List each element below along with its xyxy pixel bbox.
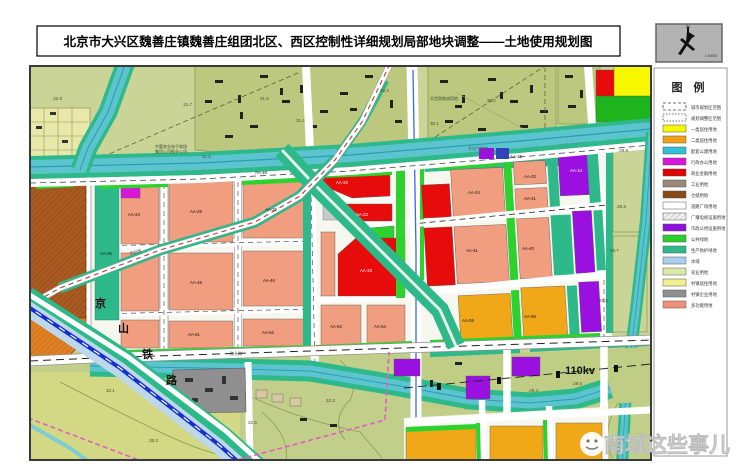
svg-text:一类居住用地: 一类居住用地 — [691, 126, 717, 133]
svg-text:山: 山 — [118, 321, 129, 335]
svg-text:二类居住用地: 二类居住用地 — [691, 137, 717, 144]
svg-text:水域: 水域 — [691, 258, 700, 264]
svg-text:.29.8: .29.8 — [616, 204, 627, 209]
svg-text:天宫院物流用地: 天宫院物流用地 — [430, 95, 458, 101]
svg-text:1:10000: 1:10000 — [705, 54, 717, 58]
svg-text:AA-62: AA-62 — [262, 330, 275, 335]
svg-text:村镇企业用地: 村镇企业用地 — [691, 291, 717, 298]
svg-text:AA-28: AA-28 — [190, 209, 203, 214]
svg-text:京: 京 — [95, 296, 106, 310]
svg-text:城市规划区范围: 城市规划区范围 — [691, 104, 721, 111]
svg-text:31.4: 31.4 — [296, 118, 305, 123]
svg-text:道路广场用地: 道路广场用地 — [691, 203, 717, 210]
svg-text:仓储用地: 仓储用地 — [691, 192, 709, 199]
svg-text:图 例: 图 例 — [671, 80, 708, 94]
svg-text:32.5: 32.5 — [248, 420, 257, 425]
svg-text:110kv: 110kv — [565, 365, 596, 377]
svg-text:.29.4: .29.4 — [528, 388, 539, 393]
svg-text:AA-26: AA-26 — [100, 251, 113, 256]
svg-text:AA-63: AA-63 — [330, 324, 343, 329]
svg-text:AA-64: AA-64 — [374, 324, 387, 329]
svg-text:.31.7: .31.7 — [182, 102, 193, 107]
svg-text:AA-61: AA-61 — [188, 332, 201, 337]
svg-text:羊坊气象路: 羊坊气象路 — [468, 145, 488, 151]
svg-text:31.2: 31.2 — [202, 154, 211, 159]
svg-text:30.3: 30.3 — [380, 88, 389, 93]
svg-text:AA-24: AA-24 — [128, 212, 141, 217]
svg-text:AA-14: AA-14 — [570, 168, 583, 173]
svg-text:路: 路 — [166, 373, 178, 387]
svg-text:.29.6: .29.6 — [598, 298, 609, 303]
svg-text:配套公建用地: 配套公建用地 — [691, 148, 717, 155]
svg-text:AA-40: AA-40 — [522, 246, 535, 251]
svg-text:行政办公用地: 行政办公用地 — [691, 159, 717, 166]
svg-text:工业用地: 工业用地 — [691, 181, 709, 188]
svg-text:规划调整区范围: 规划调整区范围 — [691, 115, 721, 122]
svg-text:.22.9: .22.9 — [52, 96, 63, 101]
svg-text:AA-56: AA-56 — [524, 314, 537, 319]
svg-text:AA-33: AA-33 — [360, 268, 373, 273]
svg-text:AA-29: AA-29 — [265, 207, 278, 212]
svg-text:AA-22: AA-22 — [336, 180, 349, 185]
svg-text:AA-21: AA-21 — [524, 196, 537, 201]
svg-text:.30.2: .30.2 — [148, 438, 159, 443]
svg-text:村镇居住用地: 村镇居住用地 — [691, 280, 717, 287]
svg-text:多功能用地: 多功能用地 — [691, 302, 713, 309]
svg-text:AA-18: AA-18 — [510, 154, 523, 159]
svg-text:魏永路: 魏永路 — [230, 350, 242, 356]
svg-text:AA-45: AA-45 — [190, 280, 203, 285]
svg-text:公共绿地: 公共绿地 — [691, 236, 709, 243]
svg-text:30.2: 30.2 — [487, 98, 496, 103]
svg-text:31.6: 31.6 — [260, 96, 269, 101]
svg-text:AA-23: AA-23 — [356, 212, 369, 217]
svg-text:.29.8: .29.8 — [618, 148, 629, 153]
svg-text:广播电视设施用地: 广播电视设施用地 — [691, 214, 726, 221]
svg-text:32.1: 32.1 — [106, 388, 115, 393]
svg-text:市政公用设施用地: 市政公用设施用地 — [691, 225, 726, 232]
svg-text:北京市大兴区魏善庄镇魏善庄组团北区、西区控制性详细规划局部地: 北京市大兴区魏善庄镇魏善庄组团北区、西区控制性详细规划局部地块调整——土地使用规… — [64, 34, 593, 49]
svg-text:AA-18: AA-18 — [255, 170, 268, 175]
svg-text:N: N — [686, 24, 689, 29]
svg-text:铁: 铁 — [142, 347, 153, 361]
svg-text:30.1: 30.1 — [430, 121, 439, 126]
svg-text:.29.5: .29.5 — [572, 381, 583, 386]
svg-text:农业用地: 农业用地 — [691, 269, 709, 276]
svg-text:AA-24: AA-24 — [468, 190, 481, 195]
svg-text:集团公司鞋业公司: 集团公司鞋业公司 — [155, 148, 187, 154]
svg-text:南城这些事儿: 南城这些事儿 — [604, 433, 730, 457]
svg-text:AA-20: AA-20 — [524, 174, 537, 179]
svg-text:29.7: 29.7 — [610, 248, 619, 253]
svg-text:32.3: 32.3 — [326, 398, 335, 403]
svg-text:生产防护绿地: 生产防护绿地 — [691, 247, 717, 254]
svg-text:商业金融用地: 商业金融用地 — [691, 170, 717, 177]
svg-text:AA-46: AA-46 — [263, 278, 276, 283]
svg-text:AA-41: AA-41 — [466, 248, 479, 253]
svg-text:AA-55: AA-55 — [462, 318, 475, 323]
